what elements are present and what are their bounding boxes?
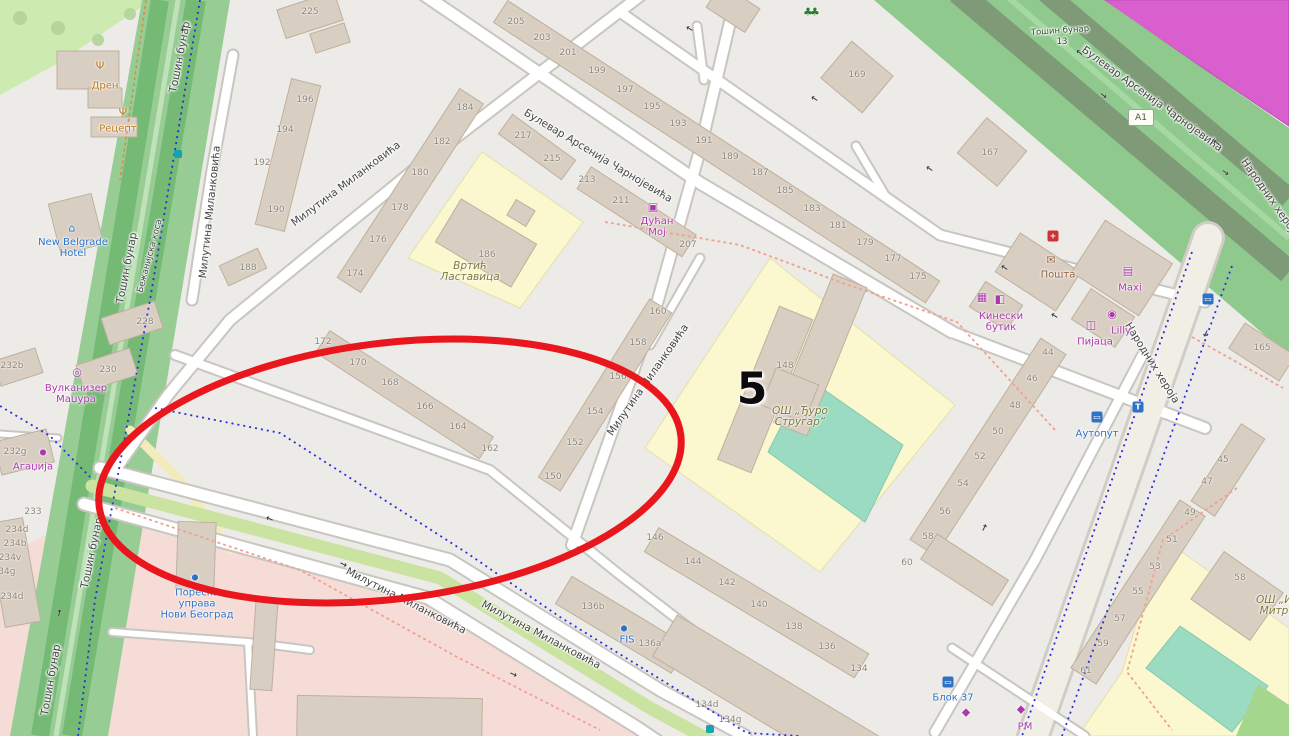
house-number: 158 [629,338,646,348]
street-name-label: Народних хероја [1238,156,1289,239]
house-number: 185 [776,186,793,196]
house-number: 138 [785,622,802,632]
poi-dot-icon: ● [192,572,199,583]
poi-label: ДућанМој [641,216,674,238]
house-number: 154 [586,407,603,417]
poi-label: ВртићЛаставица [440,261,499,283]
house-number: 225 [301,7,318,17]
street-name-label: Милутина Миланковића [344,565,468,636]
poi-label: Lilly [1111,326,1131,337]
house-number: 187 [751,168,768,178]
poi-dot-icon: ● [621,623,628,634]
house-number: 142 [718,578,735,588]
taxi-icon: T [1133,402,1144,413]
house-number: 140 [750,600,767,610]
map-labels-layer: Тошин бунарТошин бунарТошин бунарТошин б… [0,0,1289,736]
trees-icon: ♣♣ [803,7,817,18]
house-number: 228 [136,317,153,327]
transit-stop-icon [706,725,714,733]
poi-label: Кинескибутик [979,311,1023,333]
tire-icon: ◎ [72,367,82,378]
house-number: 170 [349,358,366,368]
oneway-arrow-icon: → [176,23,187,32]
poi-label: ПорескауправаНови Београд [161,588,234,621]
house-number: 59 [1097,639,1108,649]
poi-label: Блок 37 [932,693,973,704]
house-number: 196 [296,95,313,105]
bus-stop-icon: ▭ [1203,294,1214,305]
poi-label: ВулканизерМаџура [45,383,107,405]
supermarket-icon: ▤ [1123,266,1133,277]
house-number: 44 [1042,348,1053,358]
house-number: 56 [939,507,950,517]
poi-dot-icon: ● [40,447,47,458]
oneway-arrow-icon: → [54,608,65,617]
house-number: 49 [1184,508,1195,518]
house-number: 54 [957,479,968,489]
house-number: 197 [616,85,633,95]
house-number: 174 [346,269,363,279]
poi-label: ОШ „ЂуроСтругар“ [772,406,828,428]
house-number: 55 [1132,587,1143,597]
house-number: 177 [884,254,901,264]
restaurant-icon: Ψ [119,107,128,118]
house-number: 148 [776,361,793,371]
poi-label: Аутопут [1076,429,1119,440]
oneway-arrow-icon: → [979,522,991,533]
exit-label: 13 [1057,37,1068,47]
house-number: 52 [974,452,985,462]
oneway-arrow-icon: → [684,22,696,34]
house-number: 232b [1,361,24,371]
house-number: 58 [1234,573,1245,583]
hotel-icon: ⌂ [69,223,76,234]
house-number: 144 [684,557,701,567]
house-number: 203 [533,33,550,43]
house-number: 195 [643,102,660,112]
house-number: 183 [803,204,820,214]
annotation-marker-5: 5 [737,364,768,415]
house-number: 190 [267,205,284,215]
house-number: 182 [433,137,450,147]
bus-stop-icon: ▭ [1092,412,1103,423]
oneway-arrow-icon: → [1219,167,1231,180]
house-number: 176 [369,235,386,245]
house-number: 234v [0,553,21,563]
house-number: 150 [544,472,561,482]
poi-label: Рецепт [99,124,137,135]
house-number: 134d [696,700,719,710]
transit-stop-icon [174,150,182,158]
house-number: 211 [612,196,629,206]
shop-icon: ◆ [1017,704,1025,715]
marketplace-icon: ◫ [1086,320,1096,331]
house-number: 146 [646,533,663,543]
kiosk-icon: ▦ [977,292,987,303]
house-number: 233 [24,507,41,517]
poi-label: New BelgradeHotel [38,237,108,259]
boutique-icon: ◧ [995,294,1005,305]
house-number: 217 [514,131,531,141]
house-number: 181 [829,221,846,231]
house-number: 192 [253,158,270,168]
house-number: 178 [391,203,408,213]
house-number: 156 [609,372,626,382]
oneway-arrow-icon: → [1199,327,1211,338]
shop-icon: ◆ [962,707,970,718]
house-number: 60 [901,558,912,568]
convenience-icon: ▣ [648,202,658,213]
poi-label: Пошта [1041,270,1076,281]
house-number: 58 [922,532,933,542]
house-number: 152 [566,438,583,448]
street-name-label: Народних хероја [1122,320,1181,405]
street-name-label: Тошин бунар [39,643,63,716]
poi-label: ОШ „ИМитр [1256,595,1289,617]
house-number: 164 [449,422,466,432]
street-name-label: Тошин бунар [114,231,140,304]
map-canvas[interactable]: Тошин бунарТошин бунарТошин бунарТошин б… [0,0,1289,736]
oneway-arrow-icon: → [924,162,936,174]
house-number: 136 [818,642,835,652]
house-number: 194 [276,125,293,135]
house-number: 234b [4,539,27,549]
house-number: 207 [679,240,696,250]
house-number: 234d [1,592,24,602]
house-number: 61 [1080,666,1091,676]
house-number: 201 [559,48,576,58]
oneway-arrow-icon: → [1049,309,1061,321]
house-number: 199 [588,66,605,76]
street-name-label: Милутина Миланковића [289,139,403,229]
poi-label: Дрен [92,81,119,92]
motorway-ref-badge: A1 [1128,109,1154,126]
house-number: 46 [1026,374,1037,384]
house-number: 53 [1149,562,1160,572]
house-number: 189 [721,152,738,162]
house-number: 57 [1114,614,1125,624]
bus-stop-icon: ▭ [943,677,954,688]
house-number: 191 [695,136,712,146]
house-number: 166 [416,402,433,412]
house-number: 45 [1217,455,1228,465]
oneway-arrow-icon: → [999,261,1011,273]
oneway-arrow-icon: → [809,92,821,104]
house-number: 51 [1166,535,1177,545]
house-number: 136b [582,602,605,612]
house-number: 193 [669,119,686,129]
poi-label: РМ [1018,722,1033,733]
house-number: 215 [543,154,560,164]
house-number: 167 [981,148,998,158]
house-number: 205 [507,17,524,27]
house-number: 175 [909,272,926,282]
house-number: 160 [649,307,666,317]
street-name-label: Бежанијска коса [135,218,164,293]
street-name-label: Тошин бунар [79,516,106,589]
house-number: 186 [478,250,495,260]
house-number: 48 [1009,401,1020,411]
house-number: 134 [850,664,867,674]
post-office-icon: ✉ [1046,255,1055,266]
poi-label: Maxi [1118,283,1141,294]
house-number: 230 [99,365,116,375]
poi-label: Пијаца [1077,337,1113,348]
house-number: 162 [481,444,498,454]
exit-label: Тошин бунар [1031,24,1090,38]
house-number: 213 [578,175,595,185]
house-number: 184 [456,103,473,113]
house-number: 232g [4,447,27,457]
house-number: 179 [856,238,873,248]
house-number: 234g [0,567,15,577]
oneway-arrow-icon: → [1097,90,1109,103]
pharmacy-icon: + [1048,231,1059,242]
house-number: 47 [1201,477,1212,487]
house-number: 136a [639,639,662,649]
house-number: 134g [719,715,742,725]
oneway-arrow-icon: → [264,512,275,524]
oneway-arrow-icon: → [507,669,518,681]
house-number: 50 [992,427,1003,437]
house-number: 165 [1253,343,1270,353]
street-name-label: Милутина Миланковића [197,145,223,279]
house-number: 188 [239,263,256,273]
restaurant-icon: Ψ [96,61,105,72]
house-number: 168 [381,378,398,388]
house-number: 172 [314,337,331,347]
house-number: 169 [848,70,865,80]
house-number: 234d [6,525,29,535]
poi-label: FIS [619,635,634,646]
house-number: 180 [411,168,428,178]
poi-label: Агаџија [13,462,53,473]
chemist-icon: ◉ [1107,309,1117,320]
